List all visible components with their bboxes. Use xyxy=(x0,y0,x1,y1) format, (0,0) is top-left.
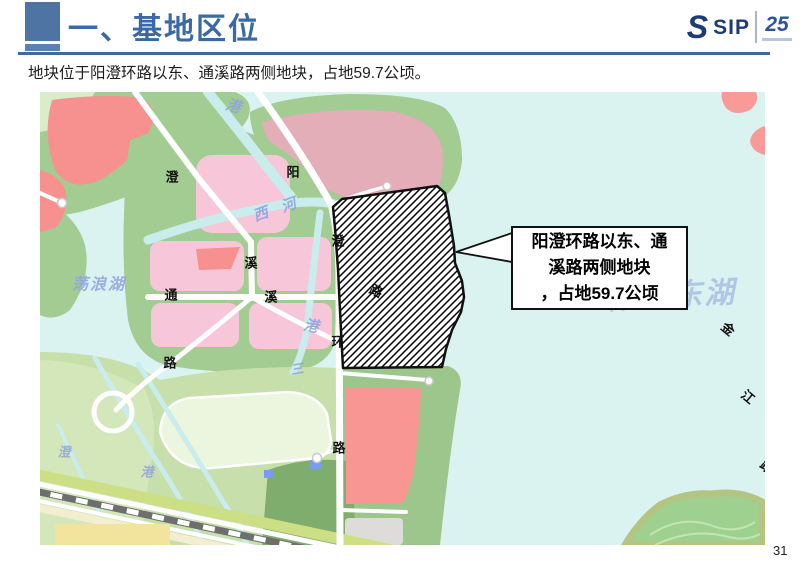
sip-logo-s-icon: S xyxy=(687,11,708,43)
sip-logo: S SIP 25 xyxy=(687,6,792,48)
logo-divider xyxy=(755,11,757,43)
site-callout-box: 阳澄环路以东、通 溪路两侧地块 ，占地59.7公顷 xyxy=(511,226,688,310)
map-water-label: 港 xyxy=(140,465,155,480)
page-number: 31 xyxy=(773,543,787,558)
map-canvas: 港西河荡浪湖港澄港三阳澄东湖 澄阳溪通溪路澄环路路金江路 xyxy=(40,92,765,545)
map-road-label: 通 xyxy=(164,288,177,303)
header-rule xyxy=(18,52,770,55)
title-accent-square xyxy=(25,2,60,41)
title-accent-bar xyxy=(25,44,60,51)
map-road-label: 溪 xyxy=(244,256,258,271)
anniversary-number: 25 xyxy=(765,14,788,35)
slide-subtitle: 地块位于阳澄环路以东、通溪路两侧地块，占地59.7公顷。 xyxy=(28,61,430,83)
map-road-label: 澄 xyxy=(165,170,179,185)
sip-logo-text: SIP xyxy=(713,17,750,38)
callout-line2: 溪路两侧地块 xyxy=(513,255,686,281)
callout-line3: ，占地59.7公顷 xyxy=(513,281,686,307)
location-map: 港西河荡浪湖港澄港三阳澄东湖 澄阳溪通溪路澄环路路金江路 xyxy=(40,92,765,545)
map-road-label: 阳 xyxy=(286,165,299,180)
page-title: 一、基地区位 xyxy=(68,4,260,48)
map-road-label: 环 xyxy=(331,335,344,350)
yellow-block xyxy=(55,524,170,545)
map-road-label: 溪 xyxy=(264,290,278,305)
callout-line1: 阳澄环路以东、通 xyxy=(513,229,686,255)
anniversary-badge: 25 xyxy=(762,14,792,41)
site-boundary-hatch xyxy=(333,186,464,368)
map-road-label: 澄 xyxy=(331,234,345,249)
map-road-label: 路 xyxy=(332,441,346,456)
map-water-label: 荡浪湖 xyxy=(72,276,127,294)
map-road-label: 路 xyxy=(163,356,177,371)
anniversary-underbar xyxy=(762,38,792,41)
